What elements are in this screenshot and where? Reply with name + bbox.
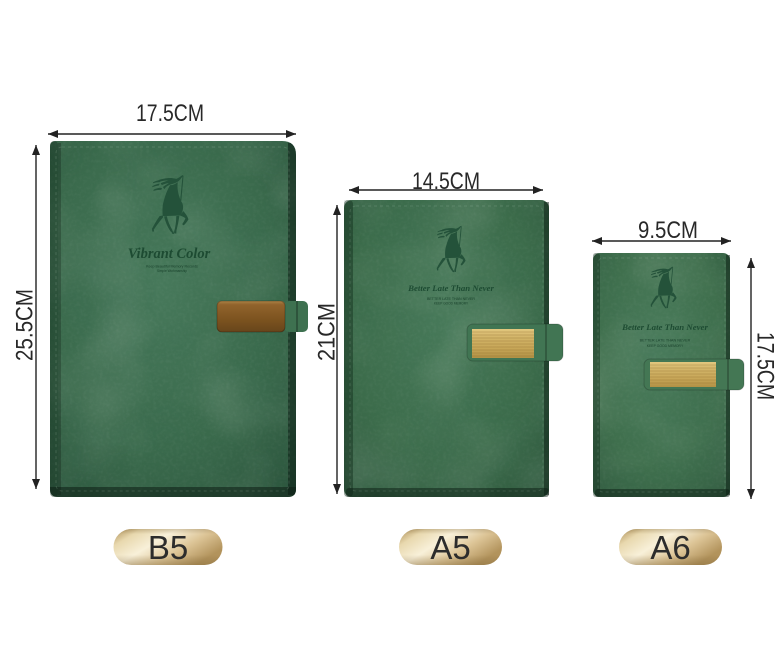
svg-text:KEEP GOOD MEMORY: KEEP GOOD MEMORY — [434, 302, 469, 306]
svg-text:BETTER LATE THAN NEVER: BETTER LATE THAN NEVER — [640, 339, 691, 343]
svg-text:B5: B5 — [148, 529, 188, 566]
svg-text:Better Late Than Never: Better Late Than Never — [621, 322, 708, 332]
svg-text:KEEP GOOD MEMORY: KEEP GOOD MEMORY — [647, 344, 684, 348]
svg-text:A5: A5 — [430, 529, 470, 566]
svg-text:9.5CM: 9.5CM — [638, 217, 698, 244]
svg-text:17.5CM: 17.5CM — [752, 332, 779, 400]
svg-text:BETTER LATE THAN NEVER: BETTER LATE THAN NEVER — [427, 297, 475, 301]
svg-text:Better Late Than Never: Better Late Than Never — [407, 283, 494, 293]
svg-text:14.5CM: 14.5CM — [412, 168, 480, 195]
svg-text:A6: A6 — [650, 529, 690, 566]
svg-text:21CM: 21CM — [313, 303, 340, 361]
svg-text:17.5CM: 17.5CM — [136, 100, 204, 127]
svg-text:25.5CM: 25.5CM — [11, 289, 38, 361]
svg-text:Vibrant Color: Vibrant Color — [128, 246, 211, 262]
svg-text:Keep Beautiful Memory Records: Keep Beautiful Memory Records — [146, 265, 198, 269]
svg-text:Simple Workmanship: Simple Workmanship — [157, 269, 187, 273]
